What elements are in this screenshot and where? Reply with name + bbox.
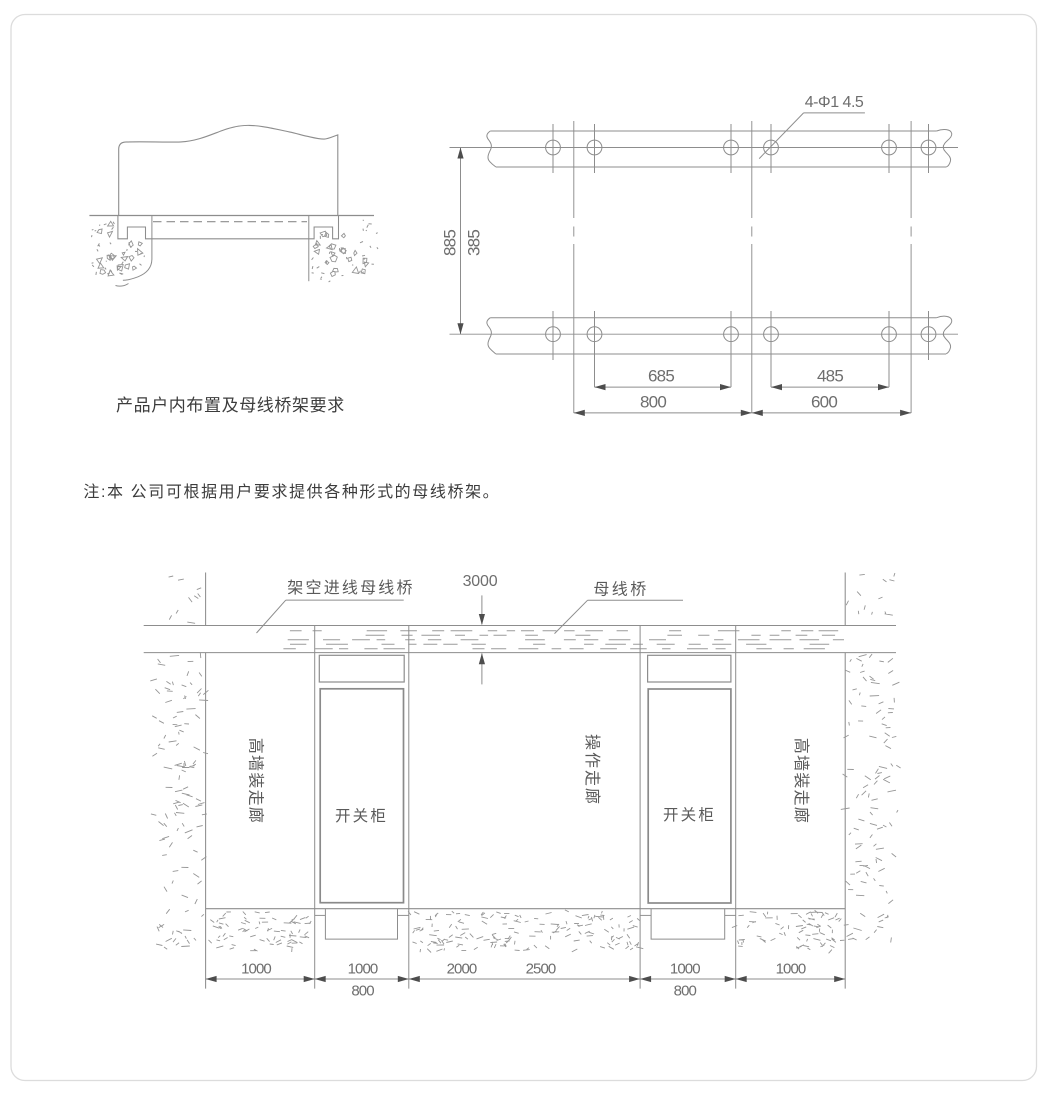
svg-text:开关柜: 开关柜 bbox=[335, 807, 388, 825]
svg-text:685: 685 bbox=[648, 367, 674, 386]
svg-text:开关柜: 开关柜 bbox=[663, 806, 716, 824]
svg-text:800: 800 bbox=[674, 983, 697, 1000]
svg-text:600: 600 bbox=[811, 393, 837, 412]
svg-text:高墙装走廊: 高墙装走廊 bbox=[792, 738, 810, 825]
svg-text:885: 885 bbox=[441, 230, 460, 256]
svg-text:架空进线母线桥: 架空进线母线桥 bbox=[287, 579, 414, 597]
svg-text:1000: 1000 bbox=[670, 961, 700, 978]
svg-text:485: 485 bbox=[817, 367, 843, 386]
svg-text:1000: 1000 bbox=[776, 961, 806, 978]
svg-text:3000: 3000 bbox=[463, 573, 498, 590]
svg-text:产品户内布置及母线桥架要求: 产品户内布置及母线桥架要求 bbox=[116, 396, 345, 415]
svg-text:385: 385 bbox=[465, 230, 484, 256]
svg-text:母线桥: 母线桥 bbox=[593, 581, 648, 599]
svg-text:1000: 1000 bbox=[348, 961, 378, 978]
svg-text:1000: 1000 bbox=[241, 961, 271, 978]
svg-text:800: 800 bbox=[351, 983, 374, 1000]
svg-text:2500: 2500 bbox=[526, 961, 556, 978]
svg-text:2000: 2000 bbox=[447, 961, 477, 978]
svg-text:注:本 公司可根据用户要求提供各种形式的母线桥架。: 注:本 公司可根据用户要求提供各种形式的母线桥架。 bbox=[83, 483, 500, 501]
svg-text:800: 800 bbox=[640, 393, 666, 412]
svg-text:4-Φ1 4.5: 4-Φ1 4.5 bbox=[805, 94, 864, 111]
svg-text:操作走廊: 操作走廊 bbox=[583, 734, 601, 806]
svg-text:高墙装走廊: 高墙装走廊 bbox=[246, 738, 264, 825]
